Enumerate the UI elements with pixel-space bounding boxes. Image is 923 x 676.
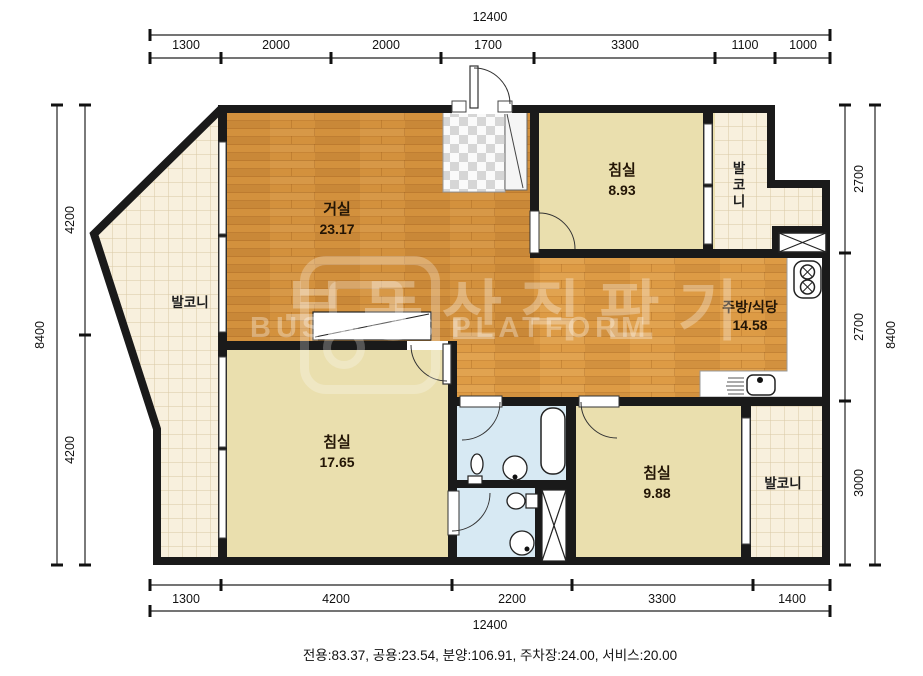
toilet-bottom-icon — [507, 493, 538, 509]
dim-right-seg-0: 2700 — [852, 165, 866, 193]
bathtop-door-leaf — [460, 396, 502, 407]
dim-top-seg-6: 1000 — [789, 38, 817, 52]
dim-bottom-seg-1: 4200 — [322, 592, 350, 606]
room-label-living: 거실 23.17 — [319, 200, 354, 238]
floorplan-canvas: 거실 23.17 침실 8.93 주방/식당 14.58 침실 17.65 침실… — [0, 0, 923, 676]
room-label-bedroom-right: 침실 9.88 — [643, 464, 671, 502]
room-area: 23.17 — [319, 220, 354, 238]
window-bedroomtop-1 — [704, 124, 712, 184]
room-name: 거실 — [319, 200, 354, 220]
wall-acbox-left — [772, 226, 779, 255]
washbasin-bottom-icon — [510, 531, 534, 555]
dim-bottom-seg-2: 2200 — [498, 592, 526, 606]
bedroomright-door-leaf — [579, 396, 619, 407]
dim-right-seg-1: 2700 — [852, 313, 866, 341]
bathtub-icon — [541, 408, 565, 474]
room-fills — [93, 105, 830, 565]
room-label-bedroom-top: 침실 8.93 — [608, 161, 636, 199]
window-bedroomleft-2 — [219, 450, 226, 538]
room-area: 9.88 — [643, 484, 671, 502]
wall-acbox-top — [772, 226, 828, 233]
dim-top-total: 12400 — [473, 10, 508, 24]
bedroomleft-door-leaf — [443, 344, 451, 384]
dim-bottom-seg-4: 1400 — [778, 592, 806, 606]
room-area: 17.65 — [319, 453, 354, 471]
ac-unit-box-icon — [779, 233, 826, 252]
wall-kitchen-bottom — [448, 397, 830, 406]
dim-bottom-total: 12400 — [473, 618, 508, 632]
window-bedroomtop-2 — [704, 187, 712, 244]
dim-right-seg-2: 3000 — [852, 469, 866, 497]
bedroomleft-door-gap — [407, 341, 448, 350]
entrance-floor — [443, 112, 505, 192]
dim-right-total: 8400 — [884, 321, 898, 349]
window-living-1 — [219, 142, 226, 234]
entrance-threshold-left — [452, 101, 466, 112]
bedroomtop-door-leaf — [530, 211, 539, 253]
window-bedroomright — [742, 418, 750, 544]
balcony-top-right-label: 발코니 — [730, 161, 744, 211]
dim-top-seg-2: 2000 — [372, 38, 400, 52]
room-name: 침실 — [643, 464, 671, 484]
room-label-bedroom-left: 침실 17.65 — [319, 433, 354, 471]
dim-left-total: 8400 — [33, 321, 47, 349]
window-living-2 — [219, 237, 226, 332]
entrance-door-arc — [474, 68, 510, 104]
dim-left-seg-0: 4200 — [63, 206, 77, 234]
dim-top-seg-3: 1700 — [474, 38, 502, 52]
dim-bottom-seg-0: 1300 — [172, 592, 200, 606]
room-area: 8.93 — [608, 181, 636, 199]
living-cabinet — [313, 312, 431, 340]
room-label-kitchen: 주방/식당 14.58 — [722, 298, 777, 334]
room-name: 침실 — [608, 161, 636, 181]
duct-shaft-icon — [542, 490, 566, 561]
room-name: 침실 — [319, 433, 354, 453]
dim-left-seg-1: 4200 — [63, 436, 77, 464]
entrance-door-leaf — [470, 66, 478, 108]
dim-top-seg-4: 3300 — [611, 38, 639, 52]
balcony-bottom-right-label: 발코니 — [764, 472, 801, 492]
dim-bottom-seg-3: 3300 — [648, 592, 676, 606]
gas-stove-icon — [794, 261, 821, 298]
room-area: 14.58 — [722, 316, 777, 334]
dim-top-seg-0: 1300 — [172, 38, 200, 52]
balcony-left-label: 발코니 — [171, 291, 208, 311]
bathbottom-door-leaf — [448, 491, 459, 535]
hall-passage-floor — [452, 345, 534, 401]
washbasin-top-icon — [503, 456, 527, 480]
room-name: 주방/식당 — [722, 298, 777, 316]
dim-top-seg-1: 2000 — [262, 38, 290, 52]
window-bedroomleft-1 — [219, 357, 226, 447]
floorplan-svg — [0, 0, 923, 676]
dim-top-seg-5: 1100 — [732, 38, 759, 52]
area-summary-text: 전용:83.37, 공용:23.54, 분양:106.91, 주차장:24.00… — [303, 644, 677, 664]
shoe-cabinet — [505, 112, 527, 190]
